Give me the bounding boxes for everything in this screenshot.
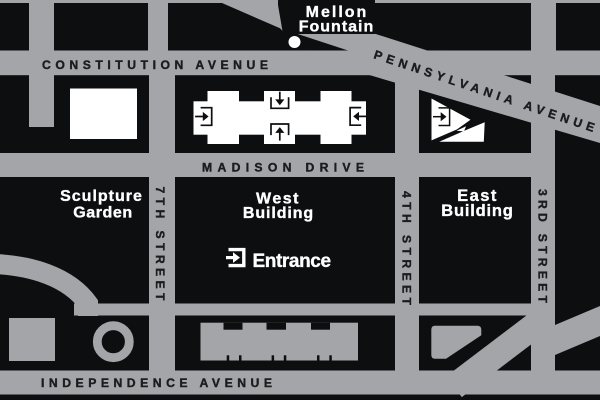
svg-text:Sculpture: Sculpture	[60, 188, 143, 205]
svg-text:Entrance: Entrance	[253, 251, 331, 272]
svg-text:CONSTITUTION AVENUE: CONSTITUTION AVENUE	[42, 58, 268, 72]
svg-text:4TH STREET: 4TH STREET	[400, 191, 414, 306]
svg-text:INDEPENDENCE AVENUE: INDEPENDENCE AVENUE	[41, 376, 272, 390]
svg-text:Garden: Garden	[73, 205, 133, 222]
svg-text:3RD STREET: 3RD STREET	[536, 189, 550, 304]
svg-text:Building: Building	[441, 202, 513, 220]
svg-text:7TH STREET: 7TH STREET	[153, 187, 167, 302]
svg-text:Fountain: Fountain	[299, 19, 375, 36]
svg-text:Building: Building	[243, 205, 314, 222]
